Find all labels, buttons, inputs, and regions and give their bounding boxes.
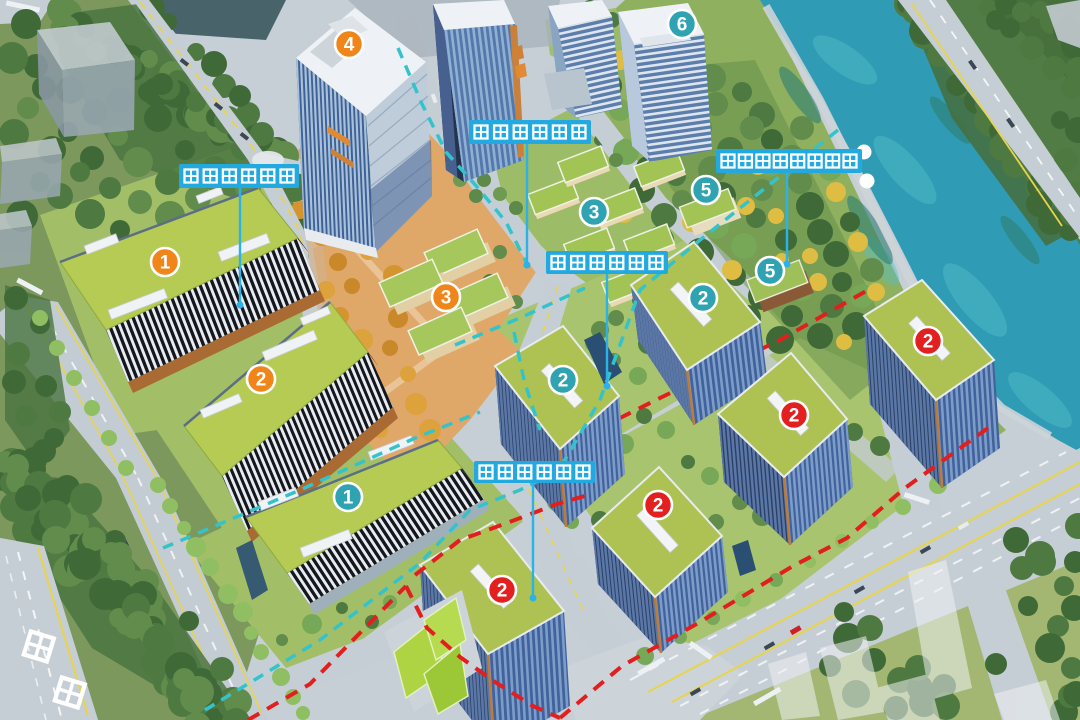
svg-text:1: 1 [343, 488, 354, 509]
svg-text:3: 3 [441, 288, 452, 309]
svg-text:3: 3 [589, 203, 600, 224]
svg-text:2: 2 [497, 581, 508, 602]
svg-text:2: 2 [256, 370, 267, 391]
svg-text:2: 2 [789, 406, 800, 427]
svg-text:2: 2 [653, 496, 664, 517]
svg-text:2: 2 [698, 289, 709, 310]
svg-text:1: 1 [160, 253, 171, 274]
svg-text:2: 2 [923, 332, 934, 353]
svg-text:5: 5 [701, 181, 712, 202]
svg-text:5: 5 [765, 262, 776, 283]
svg-text:2: 2 [558, 371, 569, 392]
svg-text:6: 6 [677, 15, 688, 36]
svg-text:4: 4 [344, 35, 355, 56]
